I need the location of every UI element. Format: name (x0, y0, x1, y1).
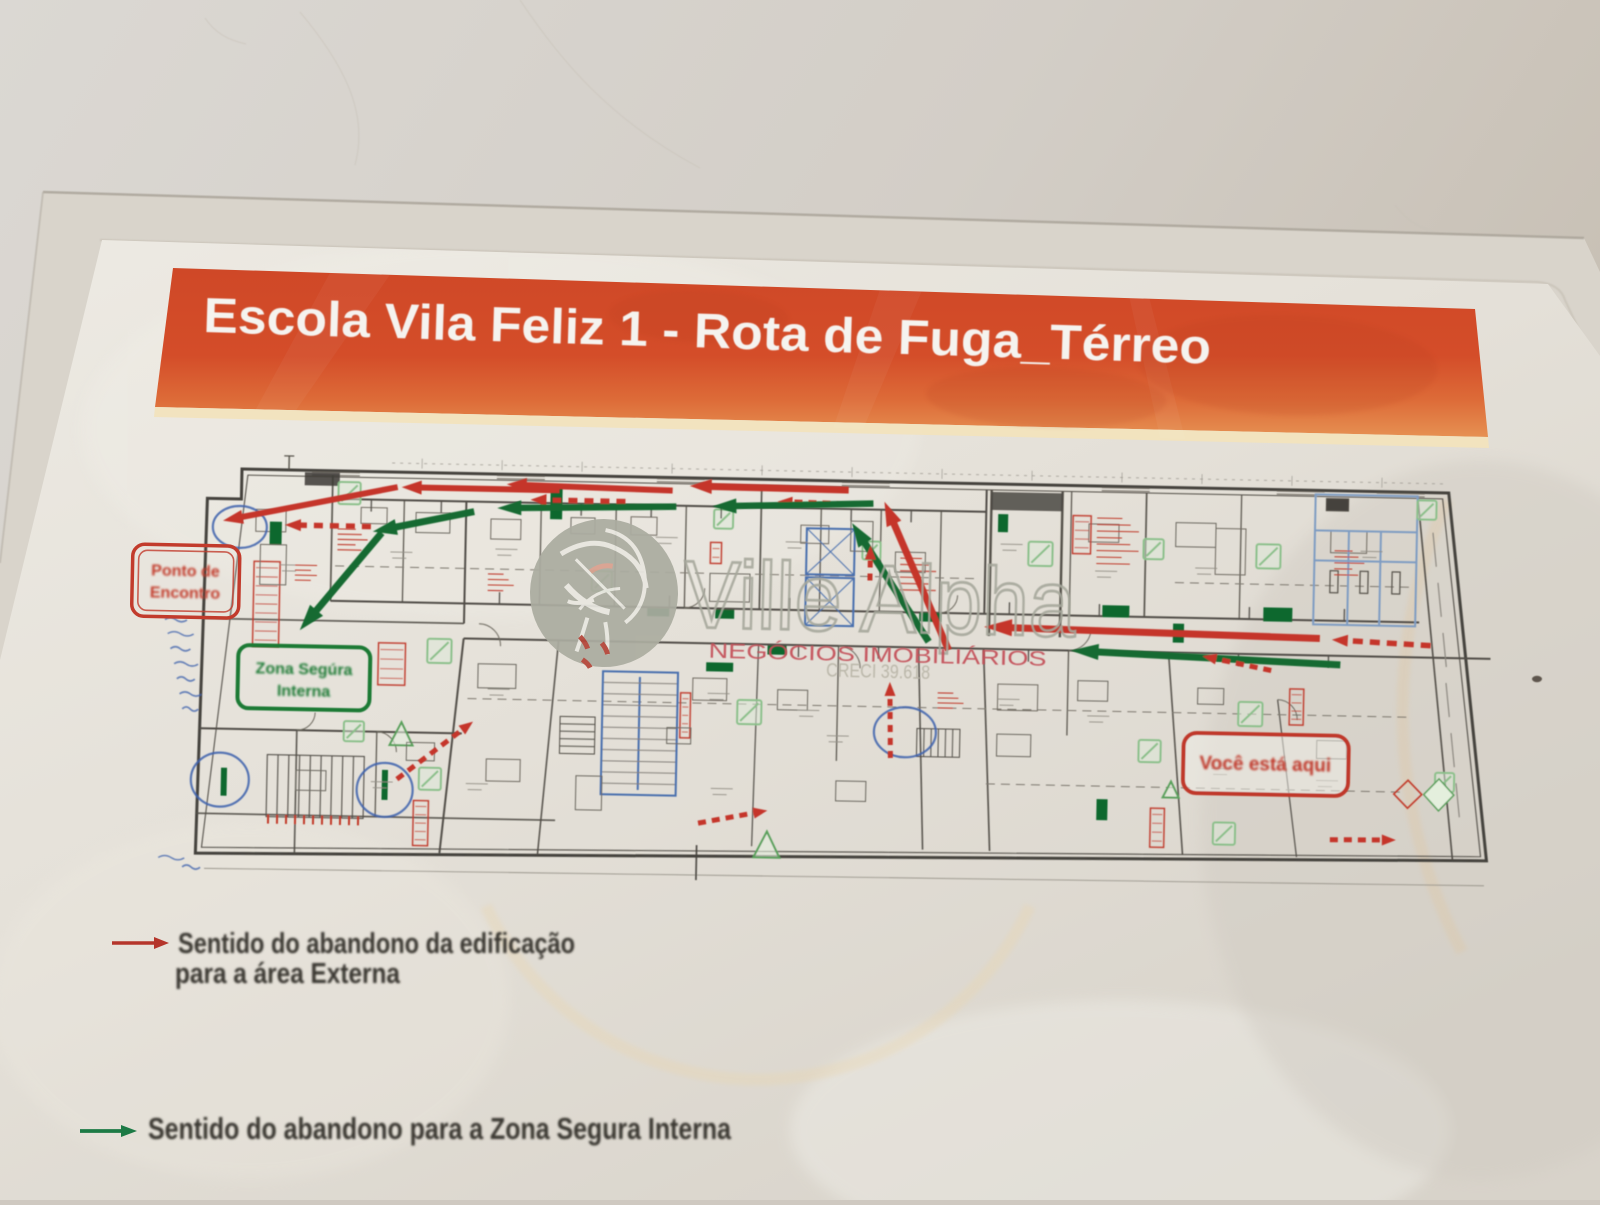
svg-text:Sentido do abandono da edifica: Sentido do abandono da edificação (178, 928, 575, 960)
svg-text:Sentido do abandono para a Zon: Sentido do abandono para a Zona Segura I… (148, 1111, 732, 1146)
svg-text:Ponto de: Ponto de (151, 562, 220, 580)
svg-text:Você está aqui: Você está aqui (1199, 753, 1331, 777)
svg-text:CRECI 39.618: CRECI 39.618 (826, 661, 930, 685)
svg-text:para a área Externa: para a área Externa (175, 958, 401, 990)
svg-text:Interna: Interna (277, 683, 331, 701)
svg-text:Zona Segúra: Zona Segúra (255, 660, 352, 679)
svg-text:Encontro: Encontro (150, 584, 221, 602)
